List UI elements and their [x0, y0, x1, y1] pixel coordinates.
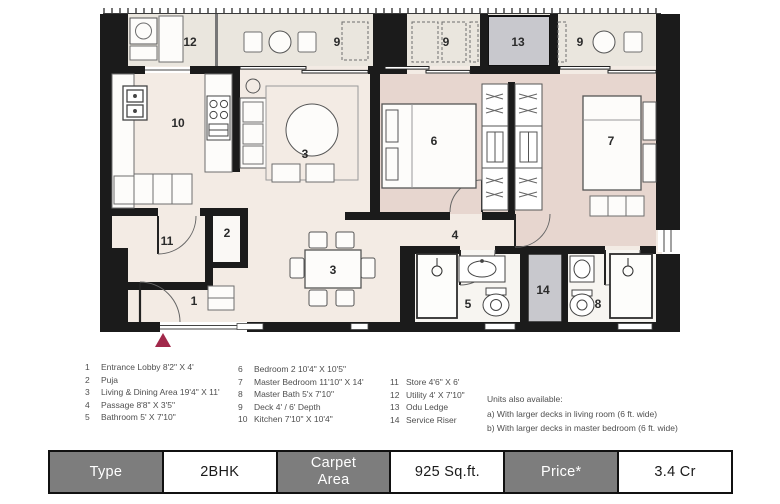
summary-cell-6: 3.4 Cr	[619, 452, 731, 492]
legend-item-4: 4Passage 8'8" X 3'5"	[85, 399, 220, 412]
washbasin-bath8	[570, 256, 594, 282]
deck-table-1	[244, 31, 316, 53]
legend-note-line-2: b) With larger decks in master bedroom (…	[487, 421, 678, 436]
coffee-table	[286, 104, 338, 156]
legend-item-8: 8Master Bath 5'x 7'10"	[238, 388, 364, 401]
legend-column-1: 1Entrance Lobby 8'2" X 4'2Puja3Living & …	[85, 361, 220, 424]
shoe-cabinet	[208, 286, 234, 310]
wardrobe-master	[515, 84, 542, 210]
legend-item-6: 6Bedroom 2 10'4" X 10'5"	[238, 363, 364, 376]
legend-item-7: 7Master Bedroom 11'10" X 14'	[238, 376, 364, 389]
room-label-9a: 9	[334, 35, 341, 49]
legend-column-3: 11Store 4'6" X 6'12Utility 4' X 7'10"13O…	[390, 376, 465, 426]
floor-cushion	[306, 164, 334, 182]
floor-plan-brochure: 1299139103671124135148 1Entrance Lobby 8…	[0, 0, 780, 504]
kitchen-sink	[123, 86, 147, 120]
entry-arrow-icon	[155, 333, 171, 347]
room-label-10: 10	[171, 116, 185, 130]
shower-bath8	[610, 254, 652, 318]
legend-item-9: 9Deck 4' / 6' Depth	[238, 401, 364, 414]
legend-item-11: 11Store 4'6" X 6'	[390, 376, 465, 389]
deck-railing	[103, 8, 661, 14]
room-label-7: 7	[608, 134, 615, 148]
legend-note-line-1: a) With larger decks in living room (6 f…	[487, 407, 678, 422]
legend-item-12: 12Utility 4' X 7'10"	[390, 389, 465, 402]
room-label-8: 8	[595, 297, 602, 311]
legend-notes: Units also available: a) With larger dec…	[487, 392, 678, 436]
washbasin-bath5	[459, 256, 505, 282]
room-label-3-dining: 3	[330, 263, 337, 277]
legend-item-2: 2Puja	[85, 374, 220, 387]
room-label-14: 14	[536, 283, 550, 297]
legend-item-5: 5Bathroom 5' X 7'10"	[85, 411, 220, 424]
wardrobe-bedroom2	[482, 84, 508, 210]
dresser	[590, 196, 644, 216]
toilet-bath8	[570, 290, 594, 316]
room-label-3-living: 3	[302, 147, 309, 161]
room-label-13: 13	[511, 35, 525, 49]
shower-bath5	[417, 254, 457, 318]
summary-table: Type2BHKCarpet Area925 Sq.ft.Price*3.4 C…	[48, 450, 733, 494]
room-label-4: 4	[452, 228, 459, 242]
summary-cell-2: 2BHK	[164, 452, 276, 492]
room-label-6: 6	[431, 134, 438, 148]
sofa	[240, 98, 266, 168]
floor-cushion	[272, 164, 300, 182]
legend-notes-title: Units also available:	[487, 392, 678, 407]
summary-cell-1: Type	[50, 452, 162, 492]
washing-machine	[130, 16, 183, 62]
summary-cell-5: Price*	[505, 452, 617, 492]
legend-column-2: 6Bedroom 2 10'4" X 10'5"7Master Bedroom …	[238, 363, 364, 426]
room-label-11: 11	[161, 234, 174, 248]
stove	[207, 96, 230, 140]
room-label-5: 5	[465, 297, 472, 311]
toilet-bath5	[483, 288, 509, 316]
legend-item-3: 3Living & Dining Area 19'4" X 11'	[85, 386, 220, 399]
room-label-2: 2	[224, 226, 231, 240]
summary-cell-4: 925 Sq.ft.	[391, 452, 503, 492]
pantry-shelves	[134, 174, 192, 204]
room-label-1: 1	[191, 294, 198, 308]
bed-bedroom2	[382, 104, 476, 188]
summary-cell-3: Carpet Area	[278, 452, 390, 492]
legend-item-14: 14Service Riser	[390, 414, 465, 427]
room-label-12: 12	[183, 35, 197, 49]
room-label-9b: 9	[443, 35, 450, 49]
legend-item-1: 1Entrance Lobby 8'2" X 4'	[85, 361, 220, 374]
legend-item-13: 13Odu Ledge	[390, 401, 465, 414]
legend-item-10: 10Kitchen 7'10" X 10'4"	[238, 413, 364, 426]
room-label-9c: 9	[577, 35, 584, 49]
